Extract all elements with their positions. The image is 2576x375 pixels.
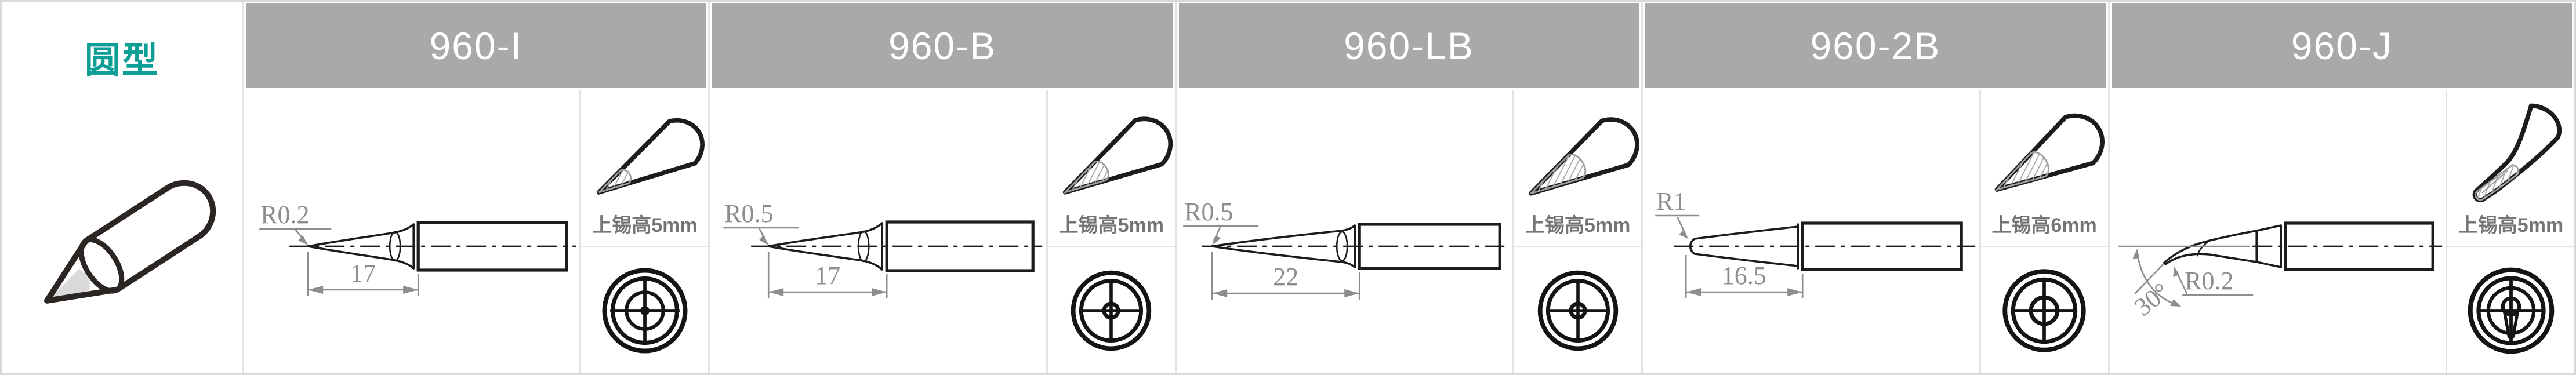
column-960-lb: 960-LB R0.5 — [1175, 2, 1641, 373]
front-view-icon — [2459, 259, 2563, 362]
side-view-cell-960-lb: R0.5 22 — [1177, 90, 1512, 373]
tin-height-cell-960-lb: 上锡高5mm — [1514, 90, 1641, 247]
round-tip-illustration — [22, 132, 222, 323]
column-header-960-lb: 960-LB — [1179, 3, 1639, 88]
length-dimension: 16.5 — [1722, 261, 1766, 290]
front-view-icon — [1993, 260, 2095, 362]
tin-height-label: 上锡高5mm — [1059, 209, 1164, 238]
front-view-cell-960-i — [581, 247, 708, 373]
column-960-i: 960-I R0.2 — [242, 2, 708, 373]
side-view-cell-960-b: R0.5 17 — [710, 90, 1046, 373]
radius-dimension: R0.2 — [260, 201, 309, 229]
tip-3d-icon — [583, 94, 706, 209]
column-960-b: 960-B R0.5 — [708, 2, 1174, 373]
side-view-drawing-960-i: R0.2 17 — [244, 90, 579, 373]
tip-3d-icon-bent — [2450, 94, 2573, 209]
side-view-drawing-960-2b: R1 16.5 — [1643, 90, 1979, 373]
tin-height-cell-960-j: 上锡高5mm — [2447, 90, 2574, 247]
model-name: 960-LB — [1344, 24, 1474, 68]
column-header-960-b: 960-B — [712, 3, 1172, 88]
side-view-drawing-960-j: 30° R0.2 — [2110, 90, 2446, 373]
side-view-cell-960-j: 30° R0.2 — [2110, 90, 2446, 373]
front-view-icon — [1061, 261, 1161, 361]
model-name: 960-2B — [1810, 24, 1940, 68]
length-dimension: 17 — [350, 259, 376, 287]
front-view-cell-960-b — [1048, 247, 1175, 373]
column-960-j: 960-J 30° R0.2 — [2108, 2, 2574, 373]
tip-3d-icon — [1516, 94, 1639, 209]
model-name: 960-B — [888, 24, 996, 68]
length-dimension: 22 — [1273, 263, 1298, 291]
column-header-960-i: 960-I — [246, 3, 706, 88]
front-view-cell-960-lb — [1514, 247, 1641, 373]
tin-height-label: 上锡高5mm — [592, 209, 697, 238]
radius-dimension: R0.5 — [1184, 198, 1233, 226]
side-view-drawing-960-b: R0.5 17 — [710, 90, 1046, 373]
front-view-icon — [594, 260, 696, 362]
tin-height-label: 上锡高5mm — [1525, 209, 1630, 238]
radius-dimension: R0.2 — [2185, 267, 2233, 295]
radius-dimension: R0.5 — [725, 199, 774, 228]
tip-3d-icon — [1983, 94, 2106, 209]
side-view-drawing-960-lb: R0.5 22 — [1177, 90, 1512, 373]
column-960-2b: 960-2B R1 — [1641, 2, 2107, 373]
length-dimension: 17 — [815, 261, 841, 290]
column-header-960-j: 960-J — [2112, 3, 2572, 88]
front-view-cell-960-j — [2447, 247, 2574, 373]
radius-dimension: R1 — [1656, 187, 1686, 216]
tin-height-cell-960-b: 上锡高5mm — [1048, 90, 1175, 247]
model-name: 960-I — [429, 24, 522, 68]
category-label: 圆型 — [85, 31, 159, 83]
model-name: 960-J — [2291, 24, 2393, 68]
tip-3d-icon — [1050, 94, 1173, 209]
tin-height-label: 上锡高6mm — [1991, 209, 2096, 238]
tin-height-label: 上锡高5mm — [2458, 209, 2563, 238]
front-view-cell-960-2b — [1981, 247, 2108, 373]
side-view-cell-960-2b: R1 16.5 — [1643, 90, 1979, 373]
tin-height-cell-960-2b: 上锡高6mm — [1981, 90, 2108, 247]
side-view-cell-960-i: R0.2 17 — [244, 90, 579, 373]
column-header-960-2b: 960-2B — [1645, 3, 2105, 88]
category-cell: 圆型 — [2, 2, 242, 373]
soldering-tip-catalog-table: 圆型 960-I R0.2 — [0, 0, 2576, 375]
angle-dimension: 30° — [2129, 277, 2175, 322]
front-view-icon — [1528, 261, 1628, 361]
tin-height-cell-960-i: 上锡高5mm — [581, 90, 708, 247]
